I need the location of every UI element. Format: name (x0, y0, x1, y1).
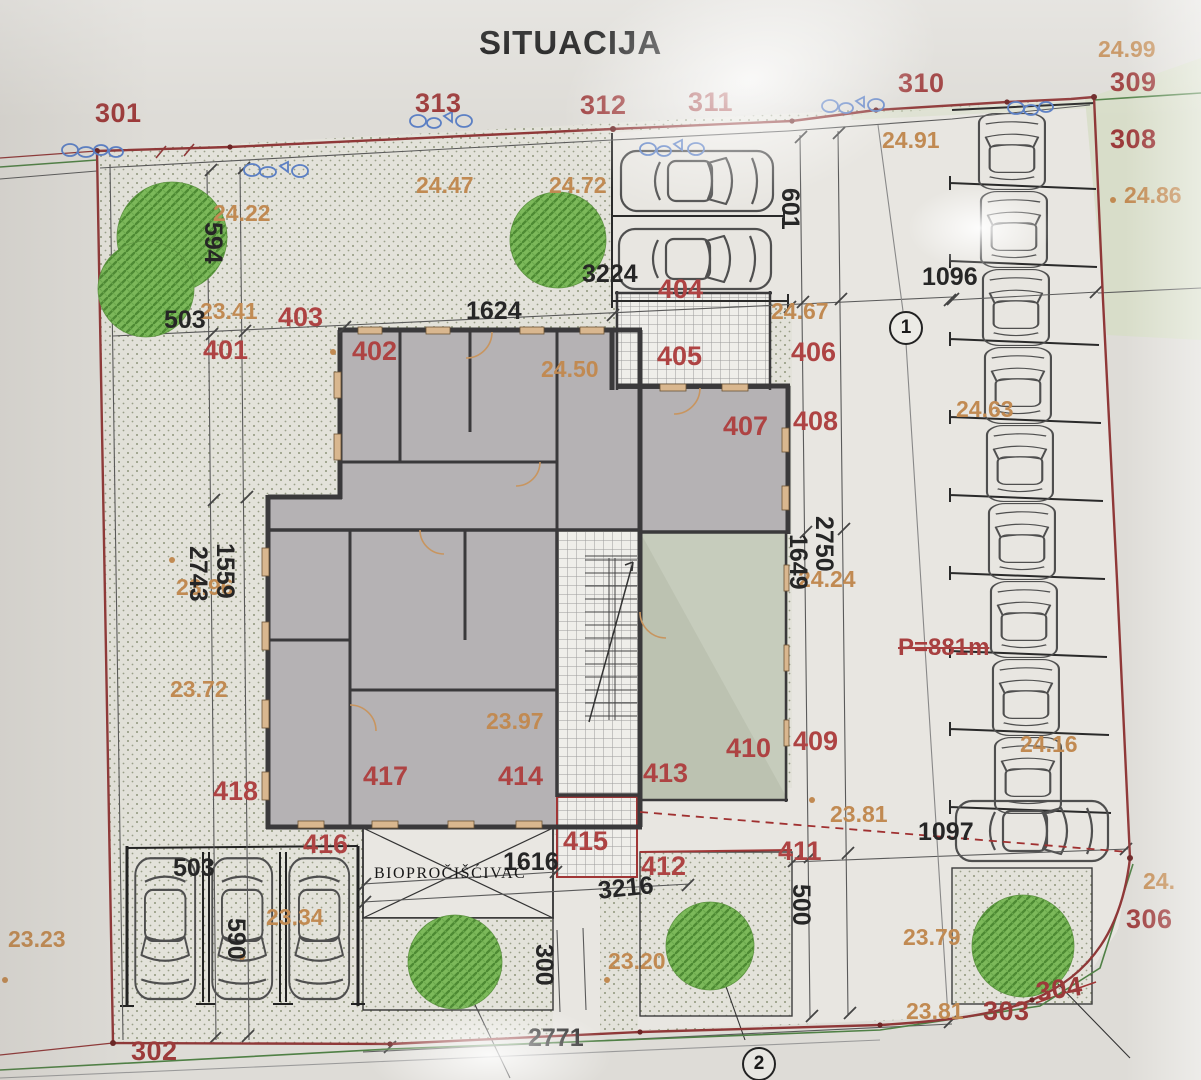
dim-601: 601 (777, 188, 802, 230)
elevation-24-91: 24.91 (882, 129, 940, 152)
node-marker-2: 2 (742, 1047, 776, 1080)
dim-2771: 2771 (528, 1026, 584, 1051)
unit-407: 407 (723, 413, 768, 440)
dim-503-bottom: 503 (173, 856, 215, 881)
elevation-24-63: 24.63 (956, 398, 1014, 421)
parcel-312: 312 (580, 92, 627, 119)
elevation-23-81-lower: 23.81 (906, 1000, 964, 1023)
elevation-24-16: 24.16 (1020, 733, 1078, 756)
elevation-23-23: 23.23 (8, 928, 66, 951)
node-2-number: 2 (754, 1053, 765, 1075)
dim-3224: 3224 (582, 262, 638, 287)
dim-1649: 1649 (785, 534, 810, 590)
elevation-24-86: 24.86 (1124, 184, 1182, 207)
unit-415: 415 (563, 828, 608, 855)
elevation-23-79: 23.79 (903, 926, 961, 949)
elevation-23-41: 23.41 (200, 300, 258, 323)
parcel-306: 306 (1126, 906, 1173, 933)
area-label: P=881m (898, 636, 989, 660)
unit-411: 411 (778, 838, 822, 865)
unit-409: 409 (793, 728, 838, 755)
dim-1096: 1096 (922, 265, 978, 290)
dim-503-top: 503 (164, 308, 206, 333)
elevation-24-67: 24.67 (771, 300, 829, 323)
elevation-24-99: 24.99 (1098, 38, 1156, 61)
unit-404: 404 (658, 276, 703, 303)
elevation-23-97: 23.97 (486, 710, 544, 733)
plan-drawing (0, 0, 1201, 1080)
dim-594: 594 (200, 222, 225, 264)
dim-3216: 3216 (597, 873, 655, 904)
unit-403: 403 (278, 304, 323, 331)
parcel-303: 303 (983, 998, 1030, 1025)
parcel-301: 301 (95, 100, 142, 127)
dim-300: 300 (531, 944, 556, 986)
unit-414: 414 (498, 763, 543, 790)
elevation-24-50: 24.50 (541, 358, 599, 381)
unit-405: 405 (657, 343, 702, 370)
elevation-23-20: 23.20 (608, 950, 666, 973)
parcel-311: 311 (688, 89, 733, 116)
unit-410: 410 (726, 735, 771, 762)
unit-406: 406 (791, 339, 836, 366)
node-marker-1: 1 (889, 311, 923, 345)
dim-2743: 2743 (185, 546, 210, 602)
unit-408: 408 (793, 408, 838, 435)
dim-1559: 1559 (212, 543, 237, 599)
parcel-302: 302 (131, 1038, 178, 1065)
elevation-24-cut: 24. (1143, 870, 1175, 893)
parcel-304: 304 (1034, 973, 1084, 1006)
elevation-24-72: 24.72 (549, 174, 607, 197)
unit-401: 401 (203, 337, 248, 364)
dim-1624: 1624 (466, 299, 522, 324)
parcel-309: 309 (1110, 69, 1157, 96)
unit-417: 417 (363, 763, 408, 790)
dim-590: 590 (223, 918, 248, 960)
sheet-title: SITUACIJA (479, 26, 662, 59)
unit-402: 402 (352, 338, 397, 365)
unit-416: 416 (303, 831, 348, 858)
elevation-24-47: 24.47 (416, 174, 474, 197)
parcel-313: 313 (415, 90, 462, 117)
parcel-308: 308 (1110, 126, 1157, 153)
elevation-23-81-upper: 23.81 (830, 803, 888, 826)
bio-purifier-label: BIOPROČIŠĆIVAČ (374, 866, 526, 882)
node-1-number: 1 (901, 317, 912, 339)
dim-500: 500 (788, 884, 813, 926)
parcel-310: 310 (898, 70, 945, 97)
dim-1097: 1097 (918, 820, 974, 845)
dim-2750: 2750 (811, 516, 836, 572)
elevation-23-72: 23.72 (170, 678, 228, 701)
elevation-23-34: 23.34 (266, 906, 324, 929)
site-plan-sheet: SITUACIJA 301 313 312 311 310 309 308 30… (0, 0, 1201, 1080)
unit-418: 418 (213, 778, 258, 805)
unit-413: 413 (643, 760, 688, 787)
